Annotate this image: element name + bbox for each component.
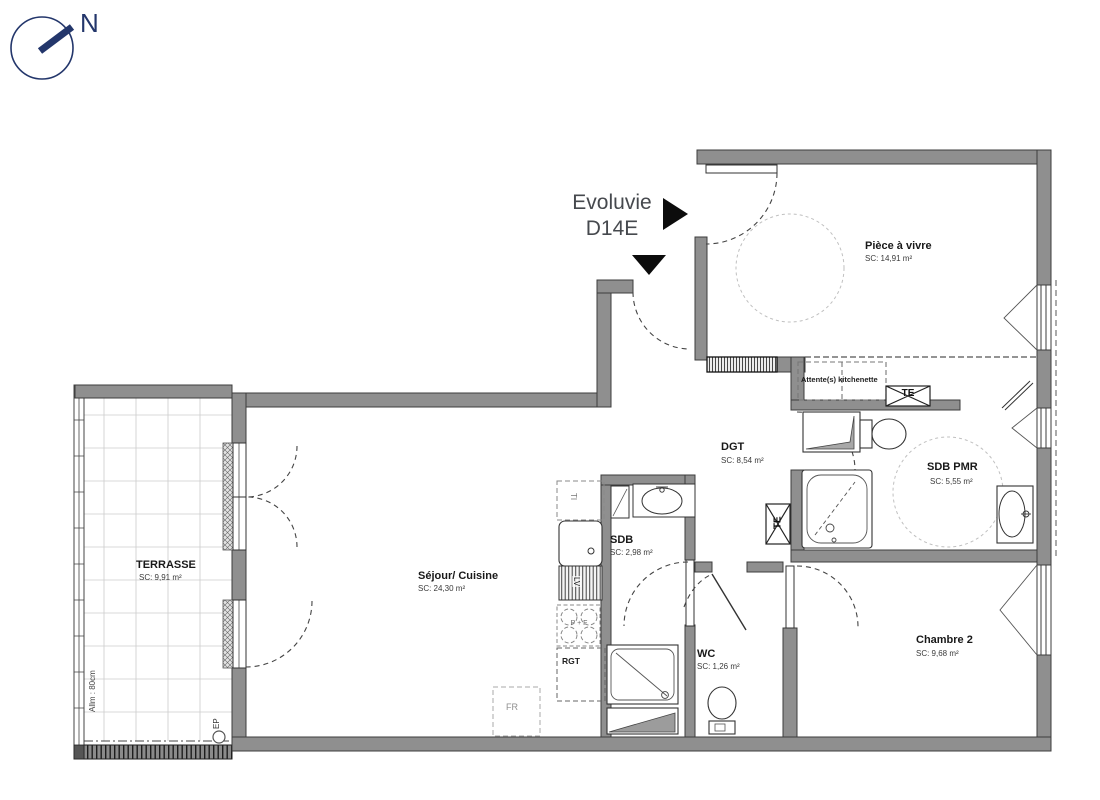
sdb-shower [607,645,678,704]
wall-right-3 [1037,448,1051,565]
pmr-circle-living [736,214,844,322]
fr-label: FR [506,702,518,712]
kitchen-sink [559,521,602,566]
allege-height-label: Allm : 80cm [88,670,97,712]
wall-left-3 [232,668,246,737]
te-label-2: TE [772,511,784,535]
sdbpmr-toilet [860,419,906,449]
room-label-wc: WC [697,648,715,661]
wall-right-1 [1037,150,1051,285]
room-label-terrasse: TERRASSE [136,559,196,572]
wall-left-1 [232,393,246,443]
room-area-sdb-pmr: SC: 5,55 m² [930,477,973,486]
wall-sdbpmr-south [791,550,1037,562]
ti-label: TI [569,493,578,500]
sdb-vanity [611,484,695,518]
terrace-single-door-arc [246,601,312,667]
floor-plan-page: N Evoluvie D14E Pièce à vivre SC: 14,91 … [0,0,1100,800]
kitchen-ti-box [557,481,604,520]
north-label: N [80,8,99,39]
french-door-arc-1 [246,446,297,497]
wall-living-west [695,237,707,360]
room-label-piece-a-vivre: Pièce à vivre [865,240,932,253]
room-area-sejour-cuisine: SC: 24,30 m² [418,584,465,593]
room-area-sdb: SC: 2,98 m² [610,548,653,557]
room-area-dgt: SC: 8,54 m² [721,456,764,465]
wall-chambre-west [783,628,797,737]
chambre-door [786,566,858,628]
wall-entry-stub [597,280,633,293]
room-area-chambre-2: SC: 9,68 m² [916,649,959,658]
entry-door [706,165,777,244]
kitchen-fixtures [493,481,605,736]
wall-sejour-top [246,393,597,407]
sdbpmr-bathtub [802,470,872,548]
room-area-wc: SC: 1,26 m² [697,662,740,671]
window-living [1004,285,1051,350]
wall-top [697,150,1051,164]
wc-toilet [708,687,736,734]
terrace-bottom-railing [84,745,232,759]
wall-terrace-top [75,385,232,398]
plan-title: Evoluvie D14E [572,190,651,242]
room-label-sdb: SDB [610,534,633,547]
wall-bottom [232,737,1051,751]
wall-dgt-west [597,280,611,407]
north-compass-icon [11,17,73,79]
wall-sdb-east-2 [685,625,695,737]
entry-arrow-right-icon [663,198,688,230]
room-label-dgt: DGT [721,441,744,454]
sdb-door [624,560,694,626]
rainwater-pipe-icon [213,731,225,743]
wall-wc-north-2 [747,562,783,572]
sdb-shower-screen [607,708,678,734]
sdbpmr-fixtures [802,412,1033,548]
room-label-sdb-pmr: SDB PMR [927,461,978,474]
sdbpmr-washbasin [997,486,1033,543]
room-label-chambre-2: Chambre 2 [916,634,973,647]
wall-right-2 [1037,350,1051,408]
lv-label: LV [572,576,581,587]
wall-wc-north-1 [695,562,712,572]
te-label-1: TE [886,388,930,400]
sdbpmr-shower-tray [803,412,860,452]
terrace-area [74,385,232,759]
cooktop-label: P + F [565,620,593,628]
entry-arrow-down-icon [632,255,666,275]
floor-plan-canvas [0,0,1100,800]
sdb-fixtures [607,484,695,734]
window-chambre [1000,565,1051,655]
plan-title-line2: D14E [572,216,651,242]
plan-title-line1: Evoluvie [572,190,651,216]
wall-left-2 [232,550,246,600]
ep-label: EP [212,718,221,729]
room-label-sejour-cuisine: Séjour/ Cuisine [418,570,498,583]
room-area-piece-a-vivre: SC: 14,91 m² [865,254,912,263]
dgt-north-door-arc [633,292,690,349]
wall-kitchenette-south [791,400,960,410]
room-area-terrasse: SC: 9,91 m² [139,573,182,582]
glazed-partition [707,357,777,372]
window-sdbpmr [1012,408,1051,448]
french-door-arc-2 [246,497,297,547]
rgt-label: RGT [562,657,580,667]
pmr-circle-sdbpmr [893,437,1003,547]
kitchenette-attente-label: Attente(s) kitchenette [801,376,878,385]
